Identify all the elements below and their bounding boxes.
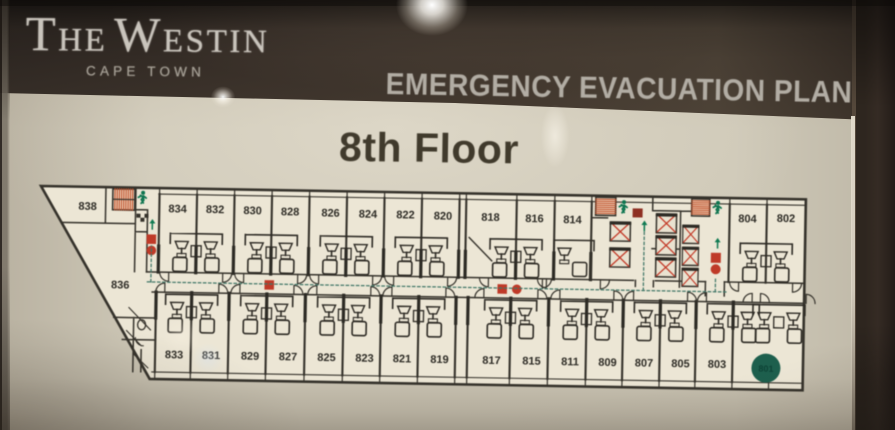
svg-text:822: 822 [396, 209, 415, 221]
svg-text:823: 823 [355, 353, 374, 365]
svg-text:816: 816 [525, 213, 544, 225]
svg-text:831: 831 [202, 350, 221, 362]
svg-text:833: 833 [165, 349, 184, 361]
svg-text:836: 836 [111, 279, 130, 291]
svg-text:807: 807 [635, 357, 654, 369]
svg-text:820: 820 [434, 210, 453, 222]
svg-text:804: 804 [738, 213, 757, 225]
svg-text:829: 829 [241, 351, 260, 363]
svg-text:838: 838 [78, 201, 97, 213]
svg-text:805: 805 [671, 358, 690, 370]
svg-text:809: 809 [598, 357, 617, 369]
svg-text:828: 828 [281, 206, 300, 218]
svg-text:815: 815 [522, 355, 541, 367]
svg-text:826: 826 [321, 207, 340, 219]
svg-text:801: 801 [758, 364, 773, 374]
svg-text:819: 819 [430, 354, 449, 366]
svg-text:821: 821 [393, 353, 412, 365]
svg-text:832: 832 [206, 204, 225, 216]
svg-text:827: 827 [279, 351, 298, 363]
svg-text:803: 803 [708, 359, 727, 371]
svg-text:830: 830 [243, 205, 262, 217]
svg-text:818: 818 [481, 212, 500, 224]
svg-text:834: 834 [168, 203, 187, 215]
svg-text:824: 824 [359, 209, 378, 221]
svg-text:825: 825 [317, 352, 336, 364]
svg-text:817: 817 [482, 355, 501, 367]
svg-text:814: 814 [563, 214, 582, 226]
svg-text:802: 802 [777, 213, 796, 225]
svg-text:811: 811 [561, 356, 579, 368]
